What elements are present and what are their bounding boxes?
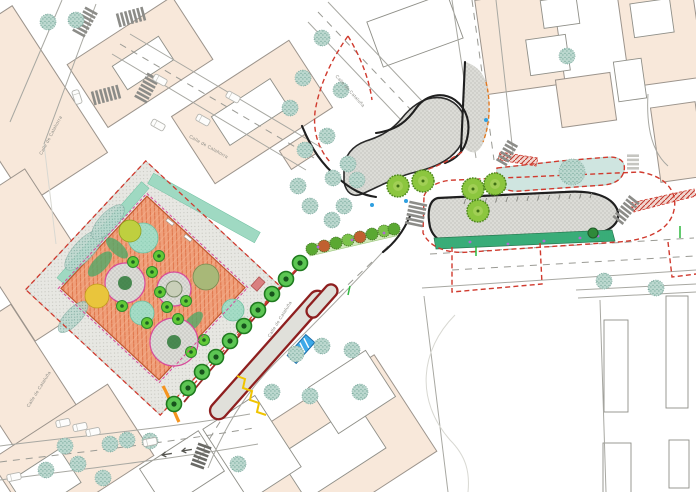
row-tree-center — [283, 276, 288, 281]
building-outline — [669, 440, 689, 488]
existing-tree-icon — [57, 438, 73, 454]
proposed-tree-center — [477, 210, 480, 213]
existing-tree-icon — [559, 159, 585, 185]
row-tree-center — [171, 401, 176, 406]
proposed-tree-center — [494, 183, 497, 186]
crosswalk-bar — [627, 154, 639, 157]
planting-circle — [222, 299, 244, 321]
existing-tree-icon — [340, 156, 356, 172]
planting-circle — [85, 284, 109, 308]
city-block — [651, 102, 696, 183]
existing-tree-icon — [352, 384, 368, 400]
plaza-tree-center — [145, 321, 149, 325]
row-tree-center — [185, 385, 190, 390]
existing-tree-icon — [68, 12, 84, 28]
plaza-tree-center — [176, 317, 180, 321]
building-outline — [540, 0, 580, 28]
shrub-icon — [354, 231, 366, 243]
shrub-icon — [388, 223, 400, 235]
proposed-tree-center — [422, 180, 425, 183]
site-plan-canvas: Calle de CalahorraCalle de CalahorraCall… — [0, 0, 696, 492]
existing-tree-icon — [282, 100, 298, 116]
building-outline — [613, 58, 646, 102]
existing-tree-icon — [295, 70, 311, 86]
existing-tree-icon — [648, 280, 664, 296]
street-edge — [576, 284, 696, 290]
signal-dot — [404, 199, 408, 203]
existing-tree-icon — [319, 128, 335, 144]
existing-tree-icon — [302, 388, 318, 404]
lawn-circle — [167, 335, 181, 349]
row-tree-center — [199, 369, 204, 374]
utility-dot — [317, 246, 320, 249]
planting-circle — [193, 264, 219, 290]
existing-tree-icon — [70, 456, 86, 472]
building-outline — [630, 0, 674, 38]
existing-tree-icon — [314, 338, 330, 354]
signal-tick — [348, 286, 350, 295]
utility-dot — [351, 239, 354, 242]
utility-dot — [579, 237, 582, 240]
plaza-tree-center — [157, 254, 161, 258]
shrub-icon — [330, 237, 342, 249]
plaza-tree-center — [158, 290, 162, 294]
proposed-tree-center — [397, 185, 400, 188]
shrub-icon — [378, 225, 390, 237]
existing-tree-icon — [302, 198, 318, 214]
existing-tree-icon — [297, 142, 313, 158]
row-tree-center — [241, 323, 246, 328]
utility-dot — [383, 232, 386, 235]
plaza-tree-center — [120, 304, 124, 308]
existing-tree-icon — [324, 212, 340, 228]
plaza-tree-center — [165, 305, 169, 309]
building-outline — [604, 320, 628, 412]
plaza-tree-center — [150, 270, 154, 274]
street-edge — [426, 315, 468, 492]
existing-tree-icon — [102, 436, 118, 452]
shrub-icon — [366, 228, 378, 240]
row-tree-center — [213, 354, 218, 359]
existing-tree-icon — [596, 273, 612, 289]
utility-dot — [507, 243, 510, 246]
existing-tree-icon — [119, 432, 135, 448]
building-outline — [603, 443, 631, 492]
plaza-tree-center — [202, 338, 206, 342]
site-plan: Calle de CalahorraCalle de CalahorraCall… — [0, 0, 696, 492]
existing-tree-icon — [344, 342, 360, 358]
existing-tree-icon — [38, 462, 54, 478]
crosswalk-bar — [627, 163, 639, 166]
existing-tree-icon — [314, 30, 330, 46]
lane-dashes — [452, 256, 694, 270]
signal-dot — [370, 203, 374, 207]
city-block — [555, 72, 616, 127]
sand-circle — [166, 281, 182, 297]
proposed-tree-center — [472, 188, 475, 191]
lawn-circle — [118, 276, 132, 290]
utility-dot — [543, 240, 546, 243]
existing-tree-icon — [336, 198, 352, 214]
existing-tree-icon — [95, 470, 111, 486]
plaza-tree-center — [189, 350, 193, 354]
utility-dot — [469, 241, 472, 244]
crosswalk-bar — [627, 159, 639, 162]
row-tree-center — [297, 260, 302, 265]
existing-tree-icon — [230, 456, 246, 472]
planting-circle — [119, 220, 141, 242]
crosswalk — [627, 154, 639, 169]
existing-tree-icon — [288, 346, 304, 362]
island-tree-icon — [588, 228, 598, 238]
red-crossing-band — [630, 189, 696, 212]
shrub-icon — [306, 243, 318, 255]
existing-tree-icon — [559, 48, 575, 64]
row-tree-center — [227, 338, 232, 343]
existing-tree-icon — [264, 384, 280, 400]
existing-tree-icon — [325, 170, 341, 186]
car-icon — [150, 119, 166, 132]
shrub-icon — [318, 240, 330, 252]
car-body — [150, 119, 166, 132]
crosswalk-bar — [627, 167, 639, 170]
existing-tree-icon — [40, 14, 56, 30]
building-outline — [666, 296, 688, 408]
signal-dot — [484, 118, 488, 122]
row-tree-center — [255, 307, 260, 312]
row-tree-center — [269, 291, 274, 296]
plaza-tree-center — [131, 260, 135, 264]
plaza-tree-center — [184, 299, 188, 303]
existing-tree-icon — [290, 178, 306, 194]
building-outline — [367, 0, 463, 67]
existing-tree-icon — [349, 172, 365, 188]
